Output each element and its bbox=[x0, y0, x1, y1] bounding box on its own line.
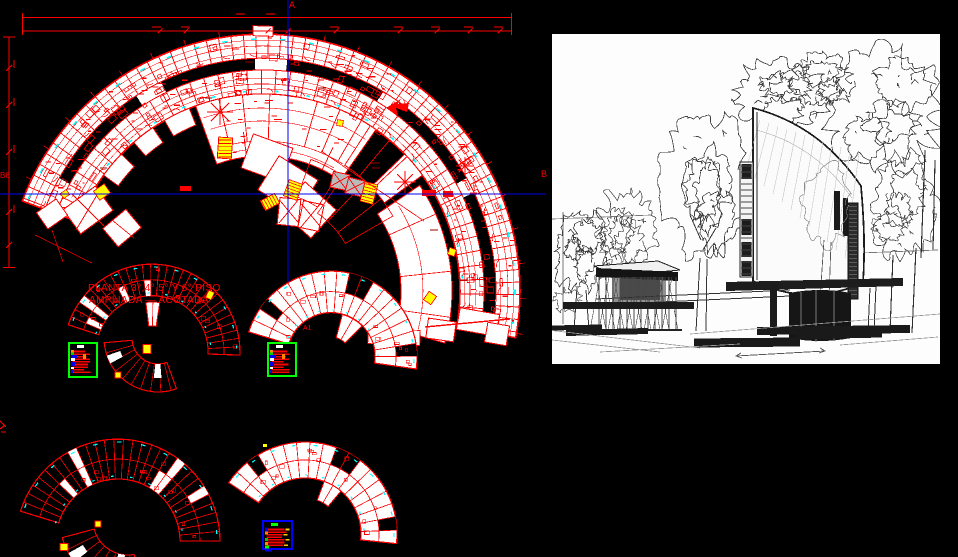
svg-text:A: A bbox=[289, 0, 295, 10]
svg-text:B6: B6 bbox=[0, 171, 10, 180]
svg-text:B: B bbox=[541, 169, 547, 179]
svg-text:PLANTA 3°,4°,5° Y 6° PISO: PLANTA 3°,4°,5° Y 6° PISO bbox=[88, 283, 221, 294]
svg-text:A1: A1 bbox=[303, 325, 312, 332]
svg-text:AMPLIADA — ACOTADA: AMPLIADA — ACOTADA bbox=[89, 295, 209, 306]
